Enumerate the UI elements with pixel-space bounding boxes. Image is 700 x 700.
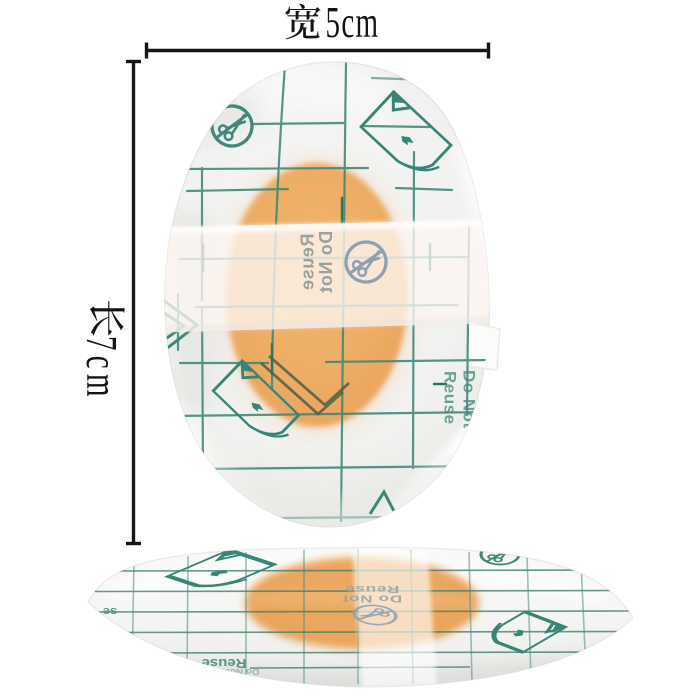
svg-text:Reuse: Reuse — [441, 371, 460, 425]
svg-text:Reuse: Reuse — [345, 584, 400, 596]
svg-text:5cm: 5cm — [326, 0, 380, 48]
svg-text:Do Not: Do Not — [316, 231, 336, 294]
svg-text:7cm: 7cm — [76, 336, 124, 402]
svg-text:Reuse: Reuse — [298, 233, 318, 290]
